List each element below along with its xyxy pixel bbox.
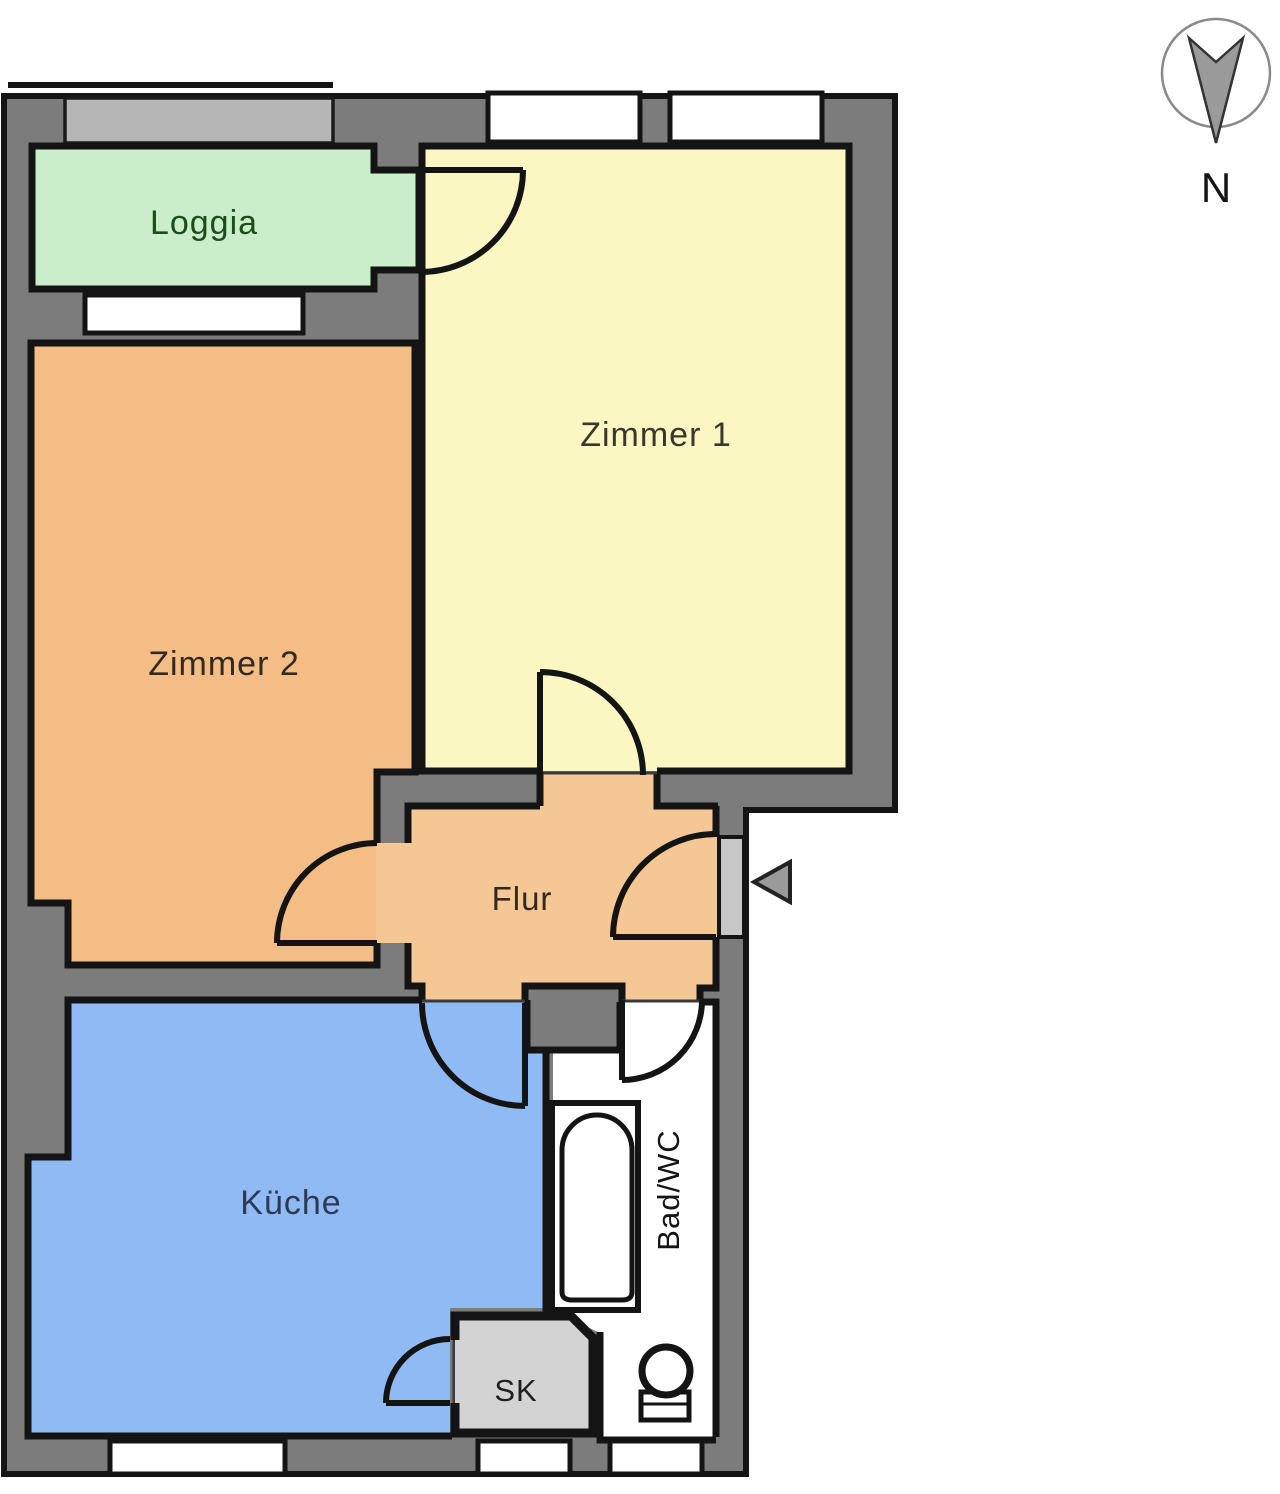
room-label-zimmer1: Zimmer 1 bbox=[580, 416, 732, 454]
room-label-loggia: Loggia bbox=[150, 204, 258, 242]
window-zimmer1-right bbox=[670, 93, 822, 142]
parapet-line bbox=[8, 82, 333, 88]
toilet bbox=[641, 1347, 690, 1420]
room-zimmer1 bbox=[422, 146, 849, 771]
north-compass: N bbox=[1162, 19, 1270, 211]
room-label-sk: SK bbox=[494, 1373, 537, 1408]
window-loggia-zimmer2 bbox=[85, 295, 303, 333]
room-label-flur: Flur bbox=[492, 880, 553, 917]
room-label-zimmer2: Zimmer 2 bbox=[148, 645, 300, 683]
floor-plan-page: N Loggia Zimmer 1 Zimmer 2 Flur Küche SK… bbox=[0, 0, 1280, 1494]
entry-door-leaf-in-wall bbox=[719, 837, 744, 937]
loggia-railing bbox=[65, 98, 333, 143]
room-label-bad: Bad/WC bbox=[651, 1129, 686, 1250]
window-zimmer1-left bbox=[488, 93, 640, 142]
floor-plan: N Loggia Zimmer 1 Zimmer 2 Flur Küche SK… bbox=[0, 0, 1280, 1494]
window-bad bbox=[610, 1441, 702, 1474]
room-label-kueche: Küche bbox=[240, 1184, 341, 1222]
bathtub bbox=[552, 1103, 638, 1310]
window-kueche bbox=[110, 1441, 285, 1474]
entrance-arrow-icon bbox=[754, 862, 790, 902]
north-arrow-icon bbox=[1189, 38, 1243, 143]
compass-label: N bbox=[1201, 164, 1231, 211]
window-below-sk bbox=[478, 1441, 570, 1474]
